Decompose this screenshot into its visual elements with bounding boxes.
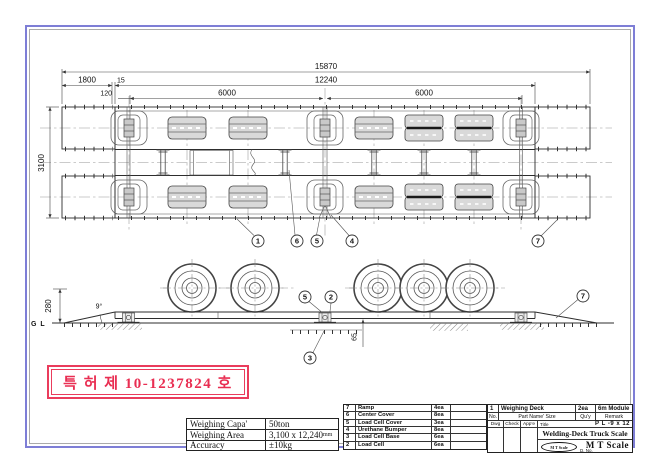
part-remark: [451, 420, 486, 427]
header-qty: Qu'y: [576, 413, 596, 421]
spec-label: Weighing Capa': [187, 419, 265, 429]
part-name: Load Cell: [356, 442, 432, 449]
signature-columns: Dwg Check App'e: [488, 421, 538, 452]
header-part-name: Part Name' Size: [499, 413, 576, 421]
sign-appe-label: App'e: [521, 421, 537, 428]
dim-deck-length-label: 12240: [315, 76, 338, 85]
balloon-3-side-number: 3: [308, 354, 312, 363]
part-remark: [451, 412, 486, 419]
item-name: Weighing Deck: [499, 405, 576, 413]
dim-height-label: 280: [44, 299, 53, 313]
plan-view: 15870 12240 1800 15 120 6000 6000 3100: [37, 62, 612, 247]
part-qty: 6ea: [432, 442, 451, 449]
title-block: 1 Weighing Deck 2ea 6m Module No. Part N…: [487, 404, 633, 453]
part-no: 7: [344, 405, 356, 412]
part-name: Load Cell Cover: [356, 420, 432, 427]
side-wheels: [163, 259, 499, 317]
balloon-7-side-number: 7: [581, 292, 585, 301]
header-no: No.: [488, 413, 499, 421]
part-no: 6: [344, 412, 356, 419]
side-ground: [52, 323, 614, 332]
spec-table: Weighing Capa' 50ton Weighing Area 3,100…: [186, 418, 339, 451]
side-supports: [118, 313, 533, 322]
balloon-1-number: 1: [256, 237, 260, 246]
ground-line-label: G L: [31, 321, 46, 328]
part-no: 4: [344, 427, 356, 434]
patent-stamp: 특 허 제 10-1237824 호: [47, 365, 249, 399]
part-qty: 6ea: [432, 434, 451, 441]
dim-ramp-angle-label: 9°: [96, 303, 103, 311]
part-no: 5: [344, 420, 356, 427]
title-block-main: Dwg Check App'e Title P L -9 x 12 Weldin…: [488, 421, 632, 452]
part-name: Load Cell Base: [356, 434, 432, 441]
balloon-2-side-number: 2: [329, 293, 333, 302]
plan-balloons: 1 6 5 4 7: [237, 170, 557, 247]
title-label: Title: [540, 422, 549, 427]
side-view: G L 280 9° 65 5 2 7 3: [31, 259, 614, 364]
drawing-sheet: 15870 12240 1800 15 120 6000 6000 3100: [0, 0, 650, 460]
part-qty: 3ea: [432, 420, 451, 427]
plate-spec: P L -9 x 12: [595, 421, 630, 427]
title-area: Title P L -9 x 12 Welding-Deck Truck Sca…: [538, 421, 632, 452]
sign-appe-cell: [521, 428, 537, 452]
drawing-title: Welding-Deck Truck Scale: [538, 428, 632, 440]
part-qty: 4ea: [432, 405, 451, 412]
balloon-6-number: 6: [295, 237, 299, 246]
dim-module-left-label: 6000: [218, 89, 236, 98]
sign-dwg-label: Dwg: [488, 421, 504, 428]
item-qty: 2ea: [576, 405, 596, 413]
spec-value: 50ton: [265, 419, 338, 429]
part-no: 2: [344, 442, 356, 449]
title-block-header-row: No. Part Name' Size Qu'y Remark: [488, 413, 632, 421]
part-no: 3: [344, 434, 356, 441]
title-block-item-row: 1 Weighing Deck 2ea 6m Module: [488, 405, 632, 413]
part-remark: [451, 442, 486, 449]
item-no: 1: [488, 405, 499, 413]
spec-label: Accuracy: [187, 440, 265, 450]
part-remark: [451, 405, 486, 412]
item-remark: 6m Module: [596, 405, 632, 413]
part-remark: [451, 427, 486, 434]
sign-dwg-cell: [488, 428, 504, 452]
part-qty: 8ea: [432, 412, 451, 419]
spec-value: ±10kg: [265, 440, 338, 450]
balloon-7-number: 7: [536, 237, 540, 246]
part-name: Urethane Bumper: [356, 427, 432, 434]
mtscale-logo: M T Scale: [541, 442, 577, 452]
part-name: Ramp: [356, 405, 432, 412]
dim-overall-label: 15870: [315, 62, 338, 71]
dim-ramp-length-label: 1800: [78, 76, 96, 85]
dim-gap-label: 15: [117, 78, 125, 85]
part-qty: 8ea: [432, 427, 451, 434]
spec-value: 3,100 x 12,240mm: [265, 429, 338, 439]
sign-check-cell: [504, 428, 521, 452]
dim-edge-offset-label: 120: [100, 91, 112, 98]
balloon-5-side-number: 5: [303, 293, 307, 302]
part-name: Center Cover: [356, 412, 432, 419]
dim-pit-depth-label: 65: [352, 333, 359, 341]
dim-deck-width-label: 3100: [37, 154, 46, 172]
sign-check-label: Check: [504, 421, 521, 428]
patent-number-text: 특 허 제 10-1237824 호: [51, 369, 245, 395]
doc-no-label: D. No.: [580, 449, 593, 453]
header-remark: Remark: [596, 413, 632, 421]
balloon-5-number: 5: [315, 237, 319, 246]
parts-table: 7 Ramp 4ea 6 Center Cover 8ea 5 Load Cel…: [343, 404, 487, 450]
dim-module-right-label: 6000: [415, 89, 433, 98]
plan-centerlines: [40, 88, 612, 238]
spec-label: Weighing Area: [187, 429, 265, 439]
part-remark: [451, 434, 486, 441]
